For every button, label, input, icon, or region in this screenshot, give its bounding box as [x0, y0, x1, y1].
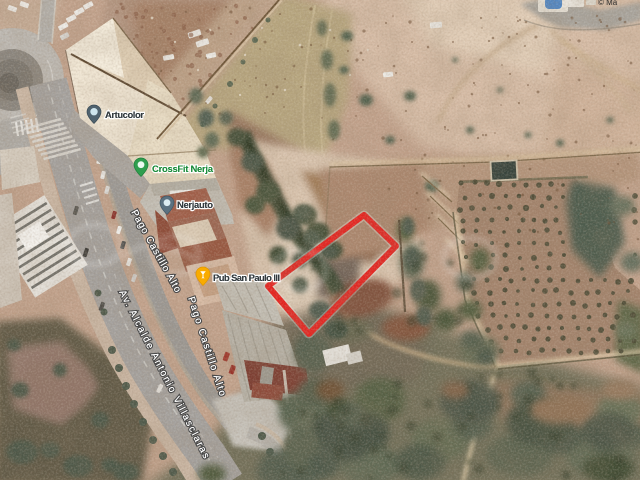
- svg-text:Artucolor: Artucolor: [105, 110, 144, 121]
- svg-text:© Ma: © Ma: [598, 0, 618, 7]
- svg-text:CrossFit Nerja: CrossFit Nerja: [152, 164, 214, 175]
- svg-text:Pub San Paulo III: Pub San Paulo III: [213, 273, 280, 284]
- svg-text:Nerjauto: Nerjauto: [177, 200, 213, 211]
